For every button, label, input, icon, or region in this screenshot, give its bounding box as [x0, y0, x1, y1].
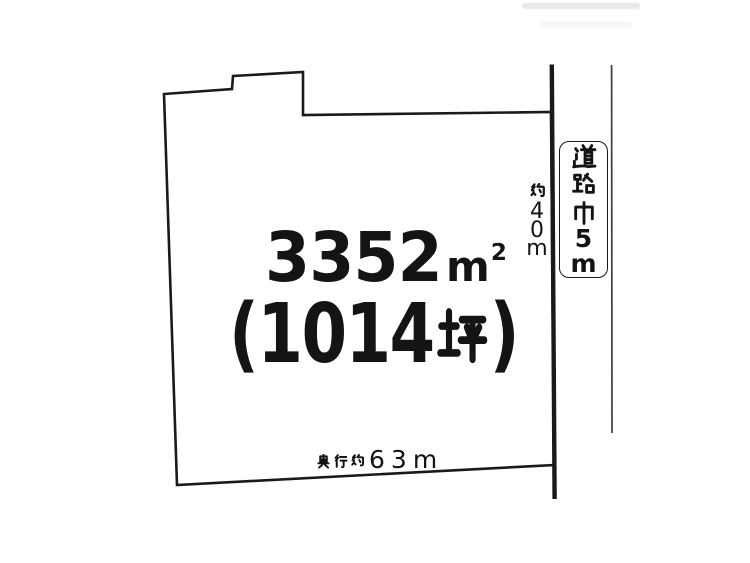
area-label: 3352 m 2	[265, 224, 507, 293]
kanji-haba-glyph	[571, 200, 597, 226]
road-width-label: 5m	[570, 144, 596, 275]
text-char: 3	[391, 450, 407, 469]
text-char: (	[229, 294, 257, 376]
text-char: 1	[345, 294, 389, 376]
kanji-yaku-glyph	[529, 183, 546, 200]
depth-label: 63m	[315, 450, 440, 469]
text-char: 6	[369, 450, 385, 469]
road-width-box: 5m	[559, 141, 608, 278]
land-plot-diagram: 3352 m 2 (1014) 63m 40m 5m	[0, 0, 750, 563]
text-char: 4	[390, 294, 434, 376]
kanji-tsubo-glyph	[436, 303, 487, 367]
text-char: 1	[257, 294, 301, 376]
text-char: 5	[575, 228, 592, 251]
kanji-michi-glyph	[571, 144, 597, 170]
kanji-oku-glyph	[316, 454, 331, 469]
area-unit-base: m	[446, 246, 490, 288]
text-char: m	[526, 240, 547, 258]
kanji-gyou-glyph	[333, 454, 348, 469]
road-near-edge-line	[552, 65, 555, 500]
area-value: 3352	[265, 224, 442, 293]
area-unit: m 2	[446, 246, 507, 288]
text-char: )	[490, 294, 518, 376]
text-char: 0	[301, 294, 345, 376]
tsubo-label: (1014)	[229, 294, 518, 376]
area-unit-exponent: 2	[491, 242, 507, 265]
text-char: m	[413, 450, 437, 469]
kanji-yaku-glyph	[350, 454, 365, 469]
frontage-label: 40m	[524, 183, 550, 258]
kanji-ro-glyph	[571, 172, 597, 198]
text-char: m	[570, 253, 596, 276]
